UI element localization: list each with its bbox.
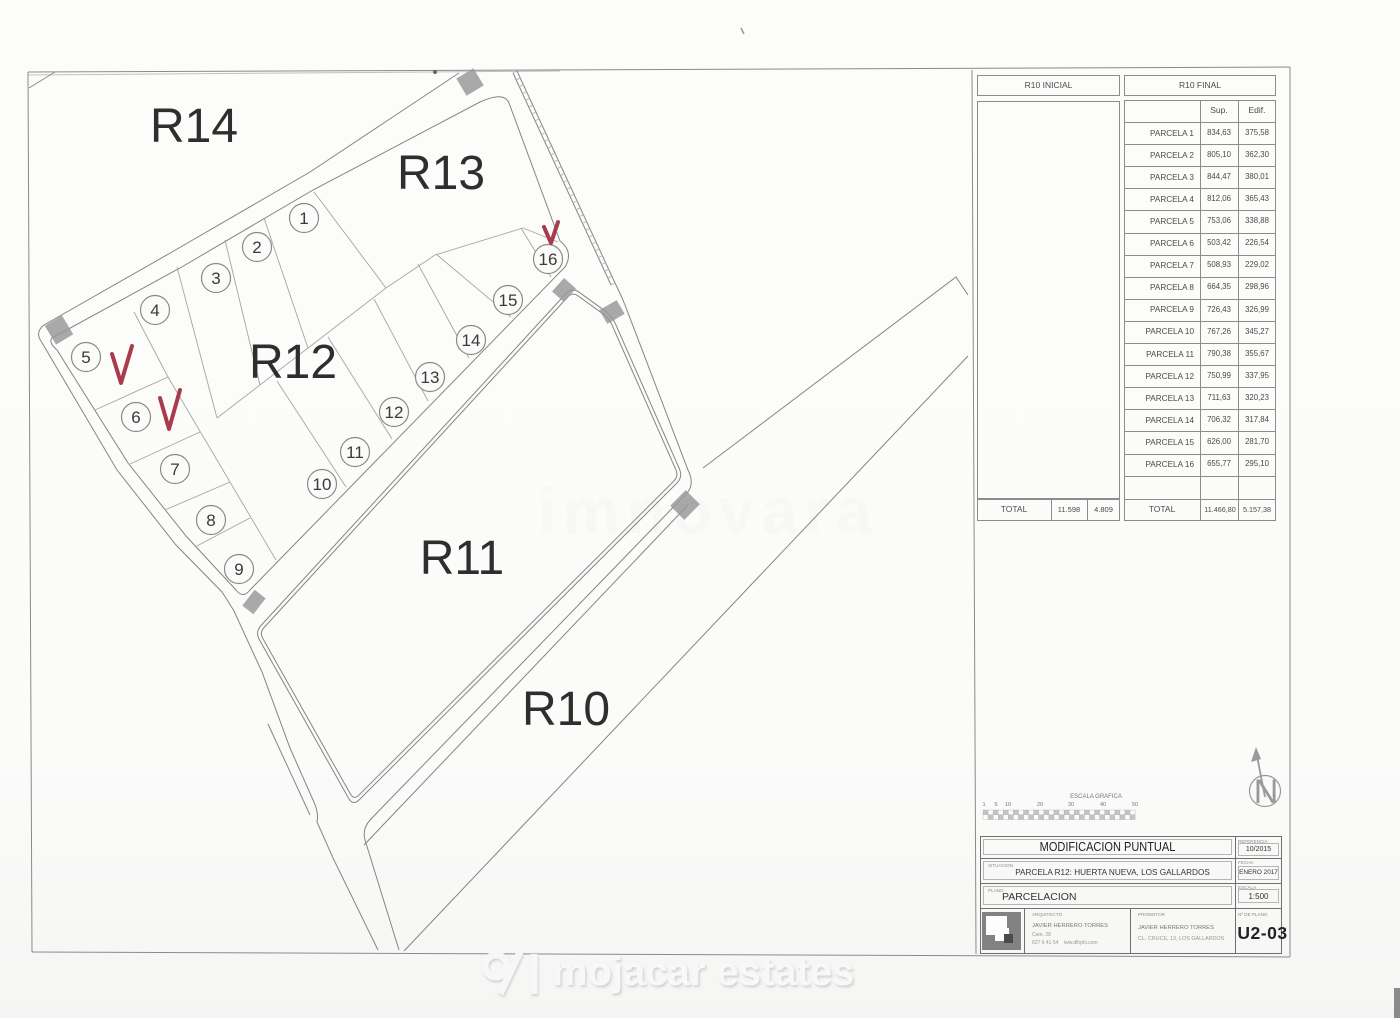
- svg-text:N: N: [1254, 773, 1279, 811]
- svg-text:12: 12: [385, 403, 404, 422]
- svg-text:1: 1: [299, 209, 308, 228]
- svg-text:R13: R13: [397, 147, 485, 200]
- svg-text:15: 15: [499, 291, 518, 310]
- svg-text:5: 5: [994, 802, 997, 808]
- svg-text:30: 30: [1068, 802, 1074, 808]
- svg-text:2: 2: [252, 238, 261, 257]
- svg-text:50: 50: [1132, 802, 1138, 808]
- svg-text:20: 20: [1037, 802, 1043, 808]
- svg-text:13: 13: [421, 368, 440, 387]
- svg-text:5: 5: [81, 348, 90, 367]
- svg-text:11: 11: [346, 443, 364, 462]
- svg-text:10: 10: [313, 475, 332, 494]
- svg-text:10: 10: [1005, 802, 1011, 808]
- svg-text:R14: R14: [150, 100, 238, 153]
- svg-text:3: 3: [211, 269, 220, 288]
- svg-text:8: 8: [206, 511, 215, 530]
- svg-text:6: 6: [131, 408, 140, 427]
- svg-text:9: 9: [234, 560, 243, 579]
- svg-text:40: 40: [1100, 802, 1106, 808]
- svg-text:1: 1: [982, 802, 985, 808]
- svg-text:7: 7: [170, 460, 179, 479]
- svg-text:14: 14: [462, 331, 481, 350]
- svg-text:R10: R10: [522, 683, 610, 736]
- svg-text:4: 4: [150, 301, 159, 320]
- svg-text:ESCALA GRAFICA: ESCALA GRAFICA: [1070, 794, 1122, 800]
- svg-text:R12: R12: [249, 336, 337, 389]
- svg-text:R11: R11: [420, 532, 505, 585]
- svg-text:16: 16: [539, 250, 558, 269]
